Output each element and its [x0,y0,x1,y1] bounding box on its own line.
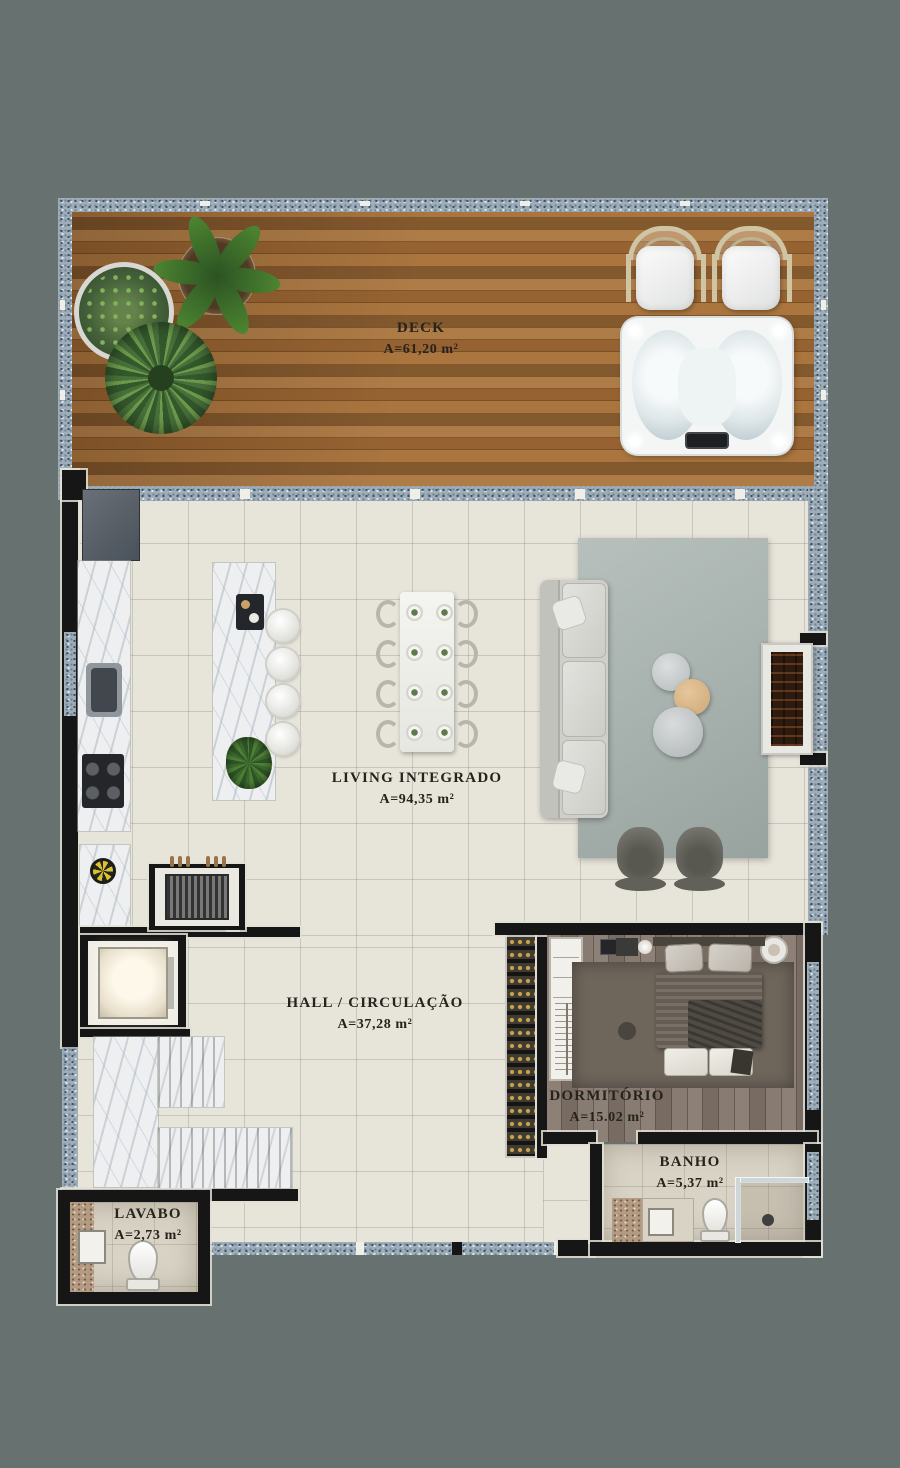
deck-label: DECK A=61,20 m² [321,318,521,360]
deck-mullion [520,201,530,206]
potted-plant-agave [105,322,217,434]
bedroom-bottom-wall [543,1132,596,1144]
room-area: A=61,20 m² [321,340,521,360]
chair-seat [722,246,780,310]
place-setting [406,724,423,741]
bed-throw [688,1000,762,1048]
deck-mullion [60,390,65,400]
door-mullion [575,489,585,499]
fireplace-bricks [771,652,803,746]
left-wall [62,470,78,1047]
place-setting [436,684,453,701]
bar-stool [267,648,299,680]
cooktop [82,754,124,808]
shower-drain [762,1214,774,1226]
dining-chair [454,600,478,628]
elevator-door [168,957,174,1009]
lavabo-label: LAVABO A=2,73 m² [86,1204,210,1246]
elevator-wall [80,1029,190,1037]
double-bed [653,937,765,1079]
deck-mullion [680,201,690,206]
hall-label: HALL / CIRCULAÇÃO A=37,28 m² [275,993,475,1035]
place-setting [436,724,453,741]
living-label: LIVING INTEGRADO A=94,35 m² [317,768,517,810]
hall-window-band [208,1242,560,1255]
dining-chair [376,680,400,708]
side-stool [618,1022,636,1040]
window-mullion-dark [452,1242,462,1255]
banho-window [807,1152,819,1220]
bedroom-window [807,962,819,1110]
elevator-cab [98,947,168,1019]
door-mullion [240,489,250,499]
coffee-table [653,707,703,757]
place-setting [436,604,453,621]
place-setting [406,604,423,621]
tub-light [630,326,640,336]
room-name: DECK [321,318,521,340]
toilet-tank [700,1230,730,1242]
dining-chair [454,720,478,748]
decor-bowl [90,858,116,884]
place-setting [436,644,453,661]
skewer [214,856,218,867]
hot-tub [622,318,792,454]
lamp-left [638,940,652,954]
armchair [617,827,664,879]
closet-shelf [553,957,579,958]
fireplace [761,643,813,755]
armchair [676,827,723,879]
chair-rail [787,254,792,302]
skewer [206,856,210,867]
stair-window [62,1047,78,1189]
island-tray [236,594,264,630]
banho-left-wall [590,1144,602,1242]
room-name: BANHO [612,1152,768,1174]
skewer [222,856,226,867]
bar-stool [267,610,299,642]
place-setting [406,684,423,701]
tub-light [774,326,784,336]
room-area: A=37,28 m² [275,1015,475,1035]
deck-mullion [360,201,370,206]
room-area: A=5,37 m² [612,1174,768,1194]
chair-rail [626,254,631,302]
vanity-sink [648,1208,674,1236]
skewer [178,856,182,867]
lounge-chair [712,226,792,318]
chair-seat [636,246,694,310]
vanity-stone [612,1198,642,1242]
bed-pillow [708,943,753,973]
barbecue-grill [165,874,229,920]
island-plant [226,737,272,789]
skewer [170,856,174,867]
chair-rail [701,254,706,302]
banho-label: BANHO A=5,37 m² [612,1152,768,1194]
room-area: A=2,73 m² [86,1226,210,1246]
tub-basin-center [678,348,736,426]
stair-lower-flight [158,1128,292,1188]
place-setting [406,644,423,661]
chair-rail [712,254,717,302]
window-mullion [356,1242,364,1255]
dormitorio-label: DORMITÓRIO A=15.02 m² [512,1086,702,1128]
dining-chair [454,680,478,708]
refrigerator [82,489,140,561]
bedroom-top-wall [495,923,817,935]
tub-light [630,436,640,446]
tub-control-panel [685,432,729,449]
sofa [540,580,608,818]
room-name: DORMITÓRIO [512,1086,702,1108]
door-mullion [410,489,420,499]
kitchen-window [64,632,76,716]
tray-item [241,600,250,609]
tray-item [249,613,259,623]
sliding-door-sill [76,487,808,501]
wall-stub [558,1240,594,1256]
dining-chair [376,720,400,748]
room-area: A=94,35 m² [317,790,517,810]
nightstand-left [616,938,638,956]
room-name: LIVING INTEGRADO [317,768,517,790]
lavabo-toilet-tank [126,1278,160,1291]
floor-plan-canvas: DECK A=61,20 m² LIVING INTEGRAD [0,0,900,1468]
dining-chair [376,600,400,628]
bar-stool [267,723,299,755]
dining-chair [454,640,478,668]
stair-upper-flight [158,1037,224,1107]
bed-pillow [664,943,703,973]
tub-light [774,436,784,446]
dining-chair [376,640,400,668]
bench-cloth [730,1049,753,1076]
deck-mullion [821,300,826,310]
sofa-cushion [562,661,606,737]
lounge-chair [626,226,706,318]
door-mullion [735,489,745,499]
room-name: LAVABO [86,1204,210,1226]
banho-bottom-wall [590,1242,821,1256]
bar-stool [267,685,299,717]
deck-mullion [60,300,65,310]
skewer [186,856,190,867]
lamp-right [768,944,780,956]
kitchen-sink [86,663,122,717]
bed-bench-cushion [664,1048,708,1076]
stair-landing [94,1037,158,1187]
room-area: A=15.02 m² [512,1108,702,1128]
bedroom-bottom-wall [638,1132,817,1144]
corridor-floor [543,1144,590,1242]
room-name: HALL / CIRCULAÇÃO [275,993,475,1015]
deck-mullion [821,390,826,400]
